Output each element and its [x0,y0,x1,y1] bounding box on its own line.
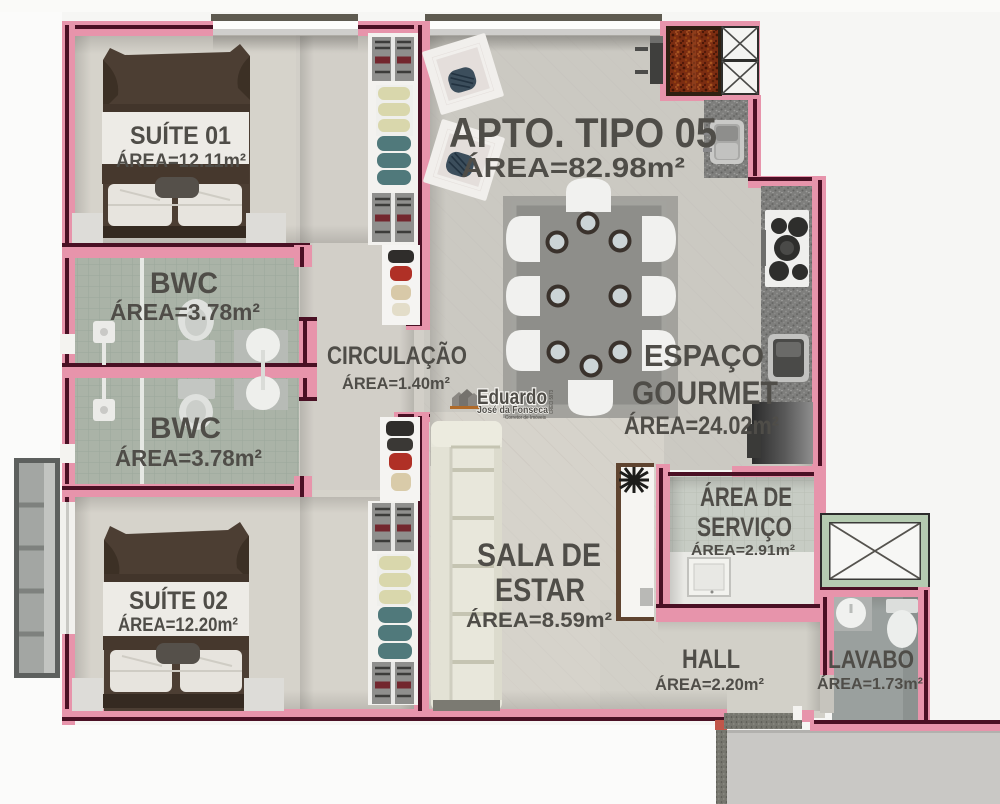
svg-text:APTO. TIPO 05: APTO. TIPO 05 [449,109,717,156]
svg-text:SUÍTE 02: SUÍTE 02 [129,586,228,615]
svg-text:GOURMET: GOURMET [632,375,778,411]
svg-text:ÁREA=8.59m²: ÁREA=8.59m² [466,609,612,632]
svg-text:ÁREA=1.73m²: ÁREA=1.73m² [817,674,923,693]
svg-text:ÁREA=82.98m²: ÁREA=82.98m² [461,152,685,183]
svg-text:SUÍTE 01: SUÍTE 01 [130,121,231,150]
svg-text:ÁREA=12.11m²: ÁREA=12.11m² [116,150,246,172]
svg-text:ÁREA=3.78m²: ÁREA=3.78m² [115,444,262,471]
svg-text:CRECI 5973: CRECI 5973 [549,390,555,414]
svg-text:ÁREA=12.20m²: ÁREA=12.20m² [118,614,238,636]
svg-text:ESTAR: ESTAR [495,572,585,608]
svg-text:BWC: BWC [150,267,218,300]
svg-text:ÁREA=2.91m²: ÁREA=2.91m² [691,542,795,559]
svg-text:ÁREA DE: ÁREA DE [700,481,792,512]
svg-text:SALA DE: SALA DE [477,537,601,573]
svg-text:LAVABO: LAVABO [828,646,914,674]
svg-text:ESPAÇO: ESPAÇO [644,338,764,373]
svg-text:ÁREA=1.40m²: ÁREA=1.40m² [342,374,450,393]
svg-text:BWC: BWC [150,412,221,445]
svg-text:ÁREA=3.78m²: ÁREA=3.78m² [110,298,260,325]
svg-text:ÁREA=2.20m²: ÁREA=2.20m² [655,675,764,694]
svg-text:CIRCULAÇÃO: CIRCULAÇÃO [327,340,467,370]
svg-text:ÁREA=24.02m²: ÁREA=24.02m² [624,411,779,440]
svg-text:HALL: HALL [682,644,740,674]
svg-text:Corretor de Imóveis: Corretor de Imóveis [505,415,546,421]
svg-text:SERVIÇO: SERVIÇO [697,512,792,542]
